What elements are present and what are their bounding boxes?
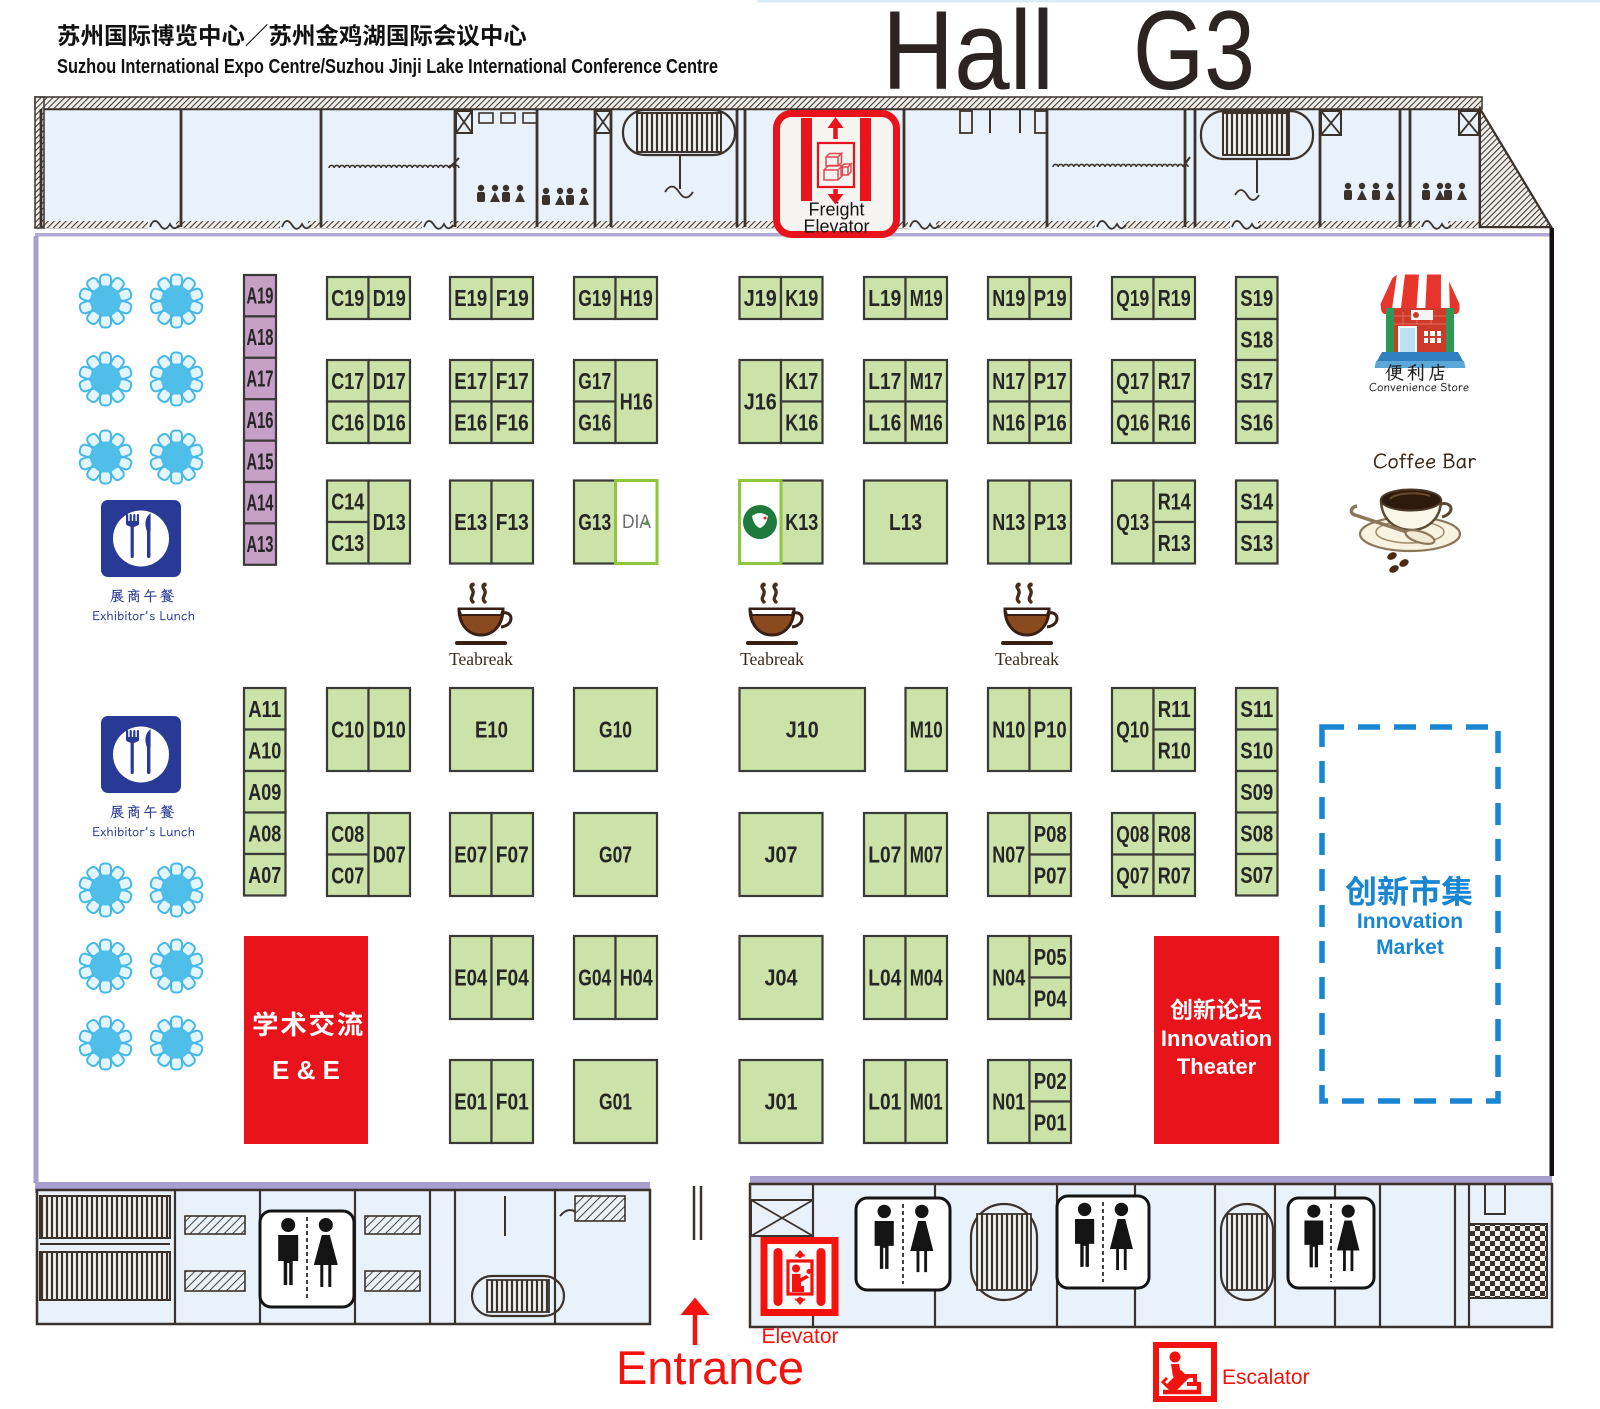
svg-text:C16: C16 (331, 409, 364, 435)
svg-text:E19: E19 (454, 285, 487, 311)
svg-text:C10: C10 (331, 717, 364, 743)
svg-text:H04: H04 (620, 965, 653, 991)
svg-text:L19: L19 (868, 285, 901, 311)
svg-text:R14: R14 (1158, 488, 1191, 514)
svg-text:K13: K13 (785, 509, 818, 535)
svg-text:Q10: Q10 (1116, 717, 1149, 743)
svg-text:A07: A07 (248, 862, 281, 888)
svg-text:Q13: Q13 (1116, 509, 1149, 535)
svg-text:E13: E13 (454, 509, 487, 535)
svg-text:M10: M10 (910, 717, 943, 743)
svg-text:P05: P05 (1034, 944, 1067, 970)
svg-text:N16: N16 (992, 409, 1025, 435)
svg-text:N10: N10 (992, 717, 1025, 743)
svg-text:P17: P17 (1034, 368, 1067, 394)
svg-text:N07: N07 (992, 842, 1025, 868)
svg-text:G16: G16 (578, 409, 611, 435)
svg-text:A10: A10 (248, 737, 281, 763)
svg-text:P19: P19 (1034, 285, 1067, 311)
svg-text:C08: C08 (331, 821, 364, 847)
svg-text:K19: K19 (785, 285, 818, 311)
svg-text:Innovation: Innovation (1161, 1026, 1272, 1051)
svg-text:S09: S09 (1240, 779, 1273, 805)
svg-text:Suzhou International Expo Cent: Suzhou International Expo Centre/Suzhou … (57, 56, 718, 78)
svg-text:A18: A18 (247, 324, 274, 350)
svg-text:Q08: Q08 (1116, 821, 1149, 847)
svg-text:J04: J04 (765, 965, 798, 991)
svg-text:S19: S19 (1240, 285, 1273, 311)
svg-text:S11: S11 (1240, 696, 1273, 722)
svg-text:N01: N01 (992, 1089, 1025, 1115)
svg-text:Theater: Theater (1177, 1054, 1257, 1079)
svg-text:L07: L07 (868, 842, 901, 868)
svg-text:G3: G3 (1133, 0, 1255, 113)
svg-text:E10: E10 (475, 717, 508, 743)
svg-text:C17: C17 (331, 368, 364, 394)
svg-text:S18: S18 (1240, 327, 1273, 353)
svg-text:E & E: E & E (272, 1055, 340, 1085)
svg-text:R08: R08 (1158, 821, 1191, 847)
svg-text:P16: P16 (1034, 409, 1067, 435)
svg-text:R19: R19 (1158, 285, 1191, 311)
svg-text:H19: H19 (620, 285, 653, 311)
svg-text:S17: S17 (1240, 368, 1273, 394)
svg-text:M16: M16 (910, 409, 943, 435)
svg-text:K16: K16 (785, 409, 818, 435)
svg-text:A11: A11 (248, 696, 281, 722)
svg-text:A09: A09 (248, 779, 281, 805)
svg-text:P07: P07 (1034, 862, 1067, 888)
svg-text:M19: M19 (910, 285, 943, 311)
svg-text:E16: E16 (454, 409, 487, 435)
svg-text:Teabreak: Teabreak (995, 649, 1059, 669)
svg-text:D19: D19 (373, 285, 406, 311)
svg-text:P02: P02 (1034, 1068, 1067, 1094)
svg-text:J01: J01 (765, 1089, 798, 1115)
svg-text:Escalator: Escalator (1222, 1366, 1310, 1389)
svg-text:S16: S16 (1240, 409, 1273, 435)
svg-text:G10: G10 (599, 717, 632, 743)
svg-text:S08: S08 (1240, 820, 1273, 846)
svg-text:P10: P10 (1034, 717, 1067, 743)
svg-text:L01: L01 (868, 1089, 901, 1115)
svg-text:Teabreak: Teabreak (740, 649, 804, 669)
svg-text:D07: D07 (373, 842, 406, 868)
svg-text:L17: L17 (868, 368, 901, 394)
svg-text:Elevator: Elevator (803, 217, 869, 237)
svg-text:Innovation: Innovation (1357, 910, 1463, 933)
svg-text:Entrance: Entrance (616, 1341, 804, 1394)
svg-text:A16: A16 (247, 407, 274, 433)
svg-text:G19: G19 (578, 285, 611, 311)
svg-text:Market: Market (1376, 936, 1444, 959)
svg-text:C13: C13 (331, 530, 364, 556)
svg-text:Q19: Q19 (1116, 285, 1149, 311)
svg-text:Q16: Q16 (1116, 409, 1149, 435)
svg-text:J10: J10 (786, 717, 819, 743)
svg-text:Hall: Hall (882, 0, 1054, 113)
svg-text:L16: L16 (868, 409, 901, 435)
svg-text:D10: D10 (373, 717, 406, 743)
svg-text:R07: R07 (1158, 862, 1191, 888)
svg-text:J07: J07 (765, 842, 798, 868)
svg-text:E07: E07 (454, 842, 487, 868)
svg-text:R11: R11 (1158, 696, 1191, 722)
svg-text:R10: R10 (1158, 737, 1191, 763)
svg-text:P04: P04 (1034, 985, 1067, 1011)
svg-text:A15: A15 (247, 448, 274, 474)
svg-text:G13: G13 (578, 509, 611, 535)
svg-text:S10: S10 (1240, 737, 1273, 763)
svg-text:A13: A13 (247, 531, 274, 557)
svg-text:J16: J16 (744, 389, 777, 415)
svg-text:D16: D16 (373, 409, 406, 435)
svg-text:R13: R13 (1158, 530, 1191, 556)
svg-text:C07: C07 (331, 862, 364, 888)
svg-text:F01: F01 (496, 1089, 529, 1115)
svg-text:P01: P01 (1034, 1109, 1067, 1135)
svg-text:G01: G01 (599, 1089, 632, 1115)
svg-text:S13: S13 (1240, 530, 1273, 556)
svg-text:L04: L04 (868, 965, 901, 991)
svg-text:C19: C19 (331, 285, 364, 311)
svg-text:P13: P13 (1034, 509, 1067, 535)
svg-text:G17: G17 (578, 368, 611, 394)
svg-text:H16: H16 (620, 389, 653, 415)
svg-text:M07: M07 (910, 842, 943, 868)
svg-text:F13: F13 (496, 509, 529, 535)
svg-text:L13: L13 (889, 509, 922, 535)
svg-text:N13: N13 (992, 509, 1025, 535)
svg-text:M01: M01 (910, 1089, 943, 1115)
svg-text:M04: M04 (910, 965, 943, 991)
svg-text:E04: E04 (454, 965, 487, 991)
svg-text:A14: A14 (247, 490, 274, 516)
svg-text:N04: N04 (992, 965, 1025, 991)
svg-text:E17: E17 (454, 368, 487, 394)
svg-text:A08: A08 (248, 820, 281, 846)
svg-text:N17: N17 (992, 368, 1025, 394)
svg-text:Q17: Q17 (1116, 368, 1149, 394)
svg-text:F17: F17 (496, 368, 529, 394)
svg-text:R17: R17 (1158, 368, 1191, 394)
svg-text:N19: N19 (992, 285, 1025, 311)
svg-text:G04: G04 (578, 965, 611, 991)
svg-text:D17: D17 (373, 368, 406, 394)
svg-text:A17: A17 (247, 366, 274, 392)
svg-text:Teabreak: Teabreak (449, 649, 513, 669)
svg-text:F04: F04 (496, 965, 529, 991)
svg-text:Q07: Q07 (1116, 862, 1149, 888)
svg-text:F07: F07 (496, 842, 529, 868)
svg-text:J19: J19 (744, 285, 777, 311)
svg-text:R16: R16 (1158, 409, 1191, 435)
svg-text:M17: M17 (910, 368, 943, 394)
svg-text:K17: K17 (785, 368, 818, 394)
svg-text:S14: S14 (1240, 488, 1273, 514)
svg-text:G07: G07 (599, 842, 632, 868)
svg-text:P08: P08 (1034, 821, 1067, 847)
svg-text:E01: E01 (454, 1089, 487, 1115)
svg-text:A19: A19 (247, 283, 274, 309)
svg-text:D13: D13 (373, 509, 406, 535)
svg-text:F16: F16 (496, 409, 529, 435)
svg-text:F19: F19 (496, 285, 529, 311)
svg-text:S07: S07 (1240, 862, 1273, 888)
svg-text:C14: C14 (331, 488, 364, 514)
